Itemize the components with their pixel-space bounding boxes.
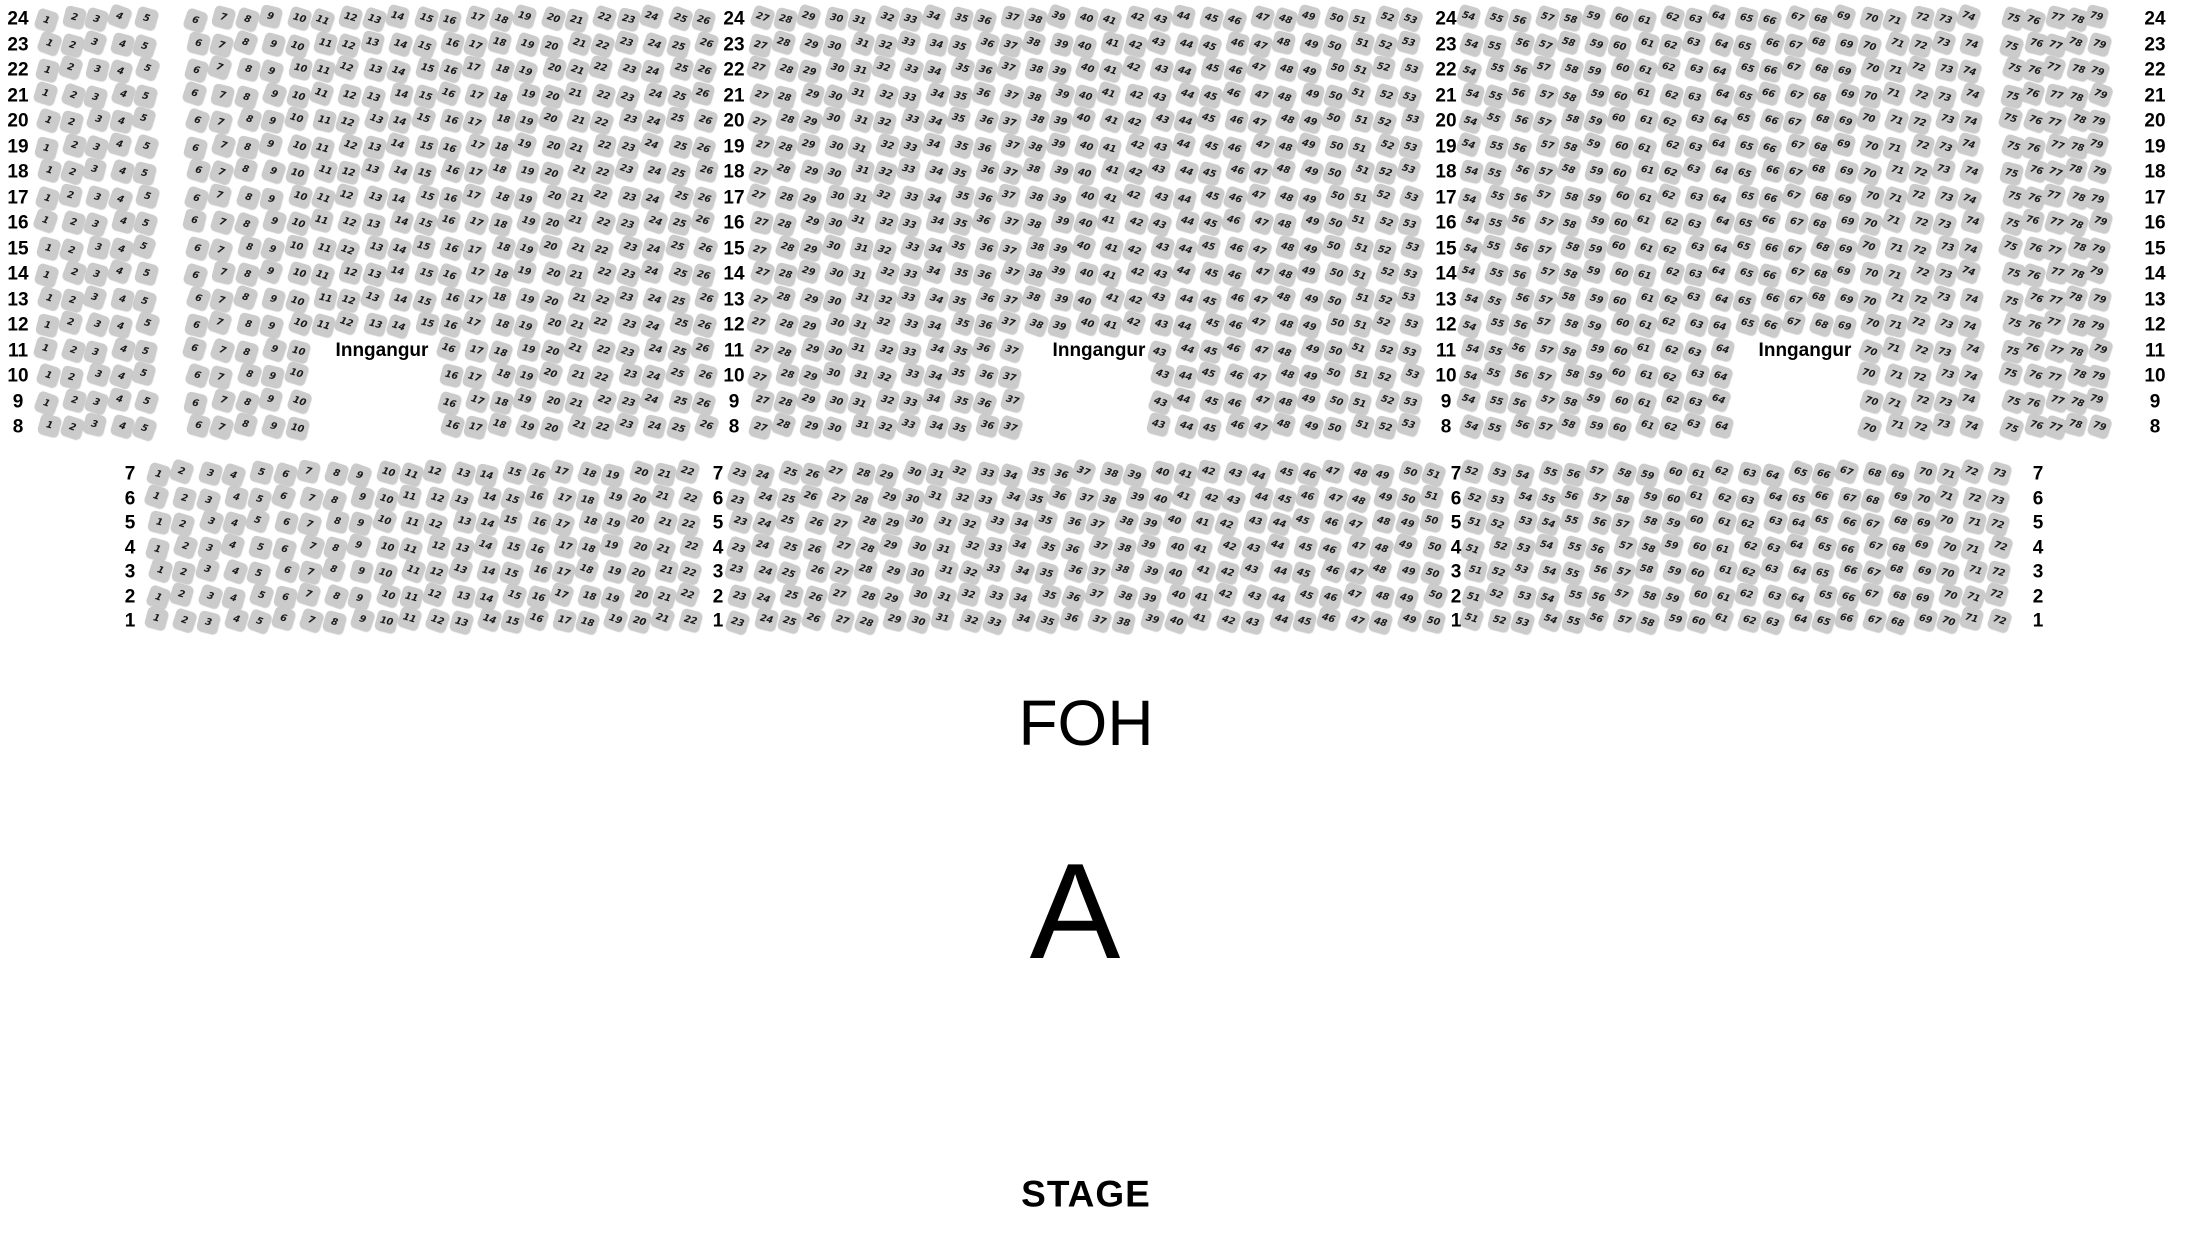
seat[interactable]: 46 <box>1221 7 1248 34</box>
seat[interactable]: 31 <box>930 606 955 631</box>
seat[interactable]: 48 <box>1272 261 1298 287</box>
seat[interactable]: 73 <box>1933 311 1960 338</box>
seat[interactable]: 56 <box>1505 335 1532 362</box>
seat[interactable]: 52 <box>1373 415 1398 440</box>
seat[interactable]: 52 <box>1373 209 1400 236</box>
seat[interactable]: 17 <box>463 415 488 440</box>
seat[interactable]: 20 <box>626 486 653 513</box>
seat[interactable]: 2 <box>60 337 87 364</box>
seat[interactable]: 6 <box>184 313 210 339</box>
seat[interactable]: 49 <box>1299 286 1325 312</box>
seat[interactable]: 61 <box>1630 207 1656 233</box>
seat[interactable]: 49 <box>1295 131 1321 157</box>
seat[interactable]: 68 <box>1859 487 1885 513</box>
seat[interactable]: 22 <box>588 310 613 335</box>
seat[interactable]: 19 <box>512 313 539 340</box>
seat[interactable]: 8 <box>232 29 259 56</box>
seat[interactable]: 40 <box>1070 233 1097 260</box>
seat[interactable]: 62 <box>1656 55 1682 81</box>
seat[interactable]: 69 <box>1834 31 1859 56</box>
seat[interactable]: 26 <box>692 107 718 133</box>
seat[interactable]: 19 <box>516 81 542 107</box>
seat[interactable]: 17 <box>464 337 490 363</box>
seat[interactable]: 73 <box>1932 84 1958 110</box>
seat[interactable]: 1 <box>34 185 60 211</box>
seat[interactable]: 47 <box>1346 533 1371 558</box>
seat[interactable]: 20 <box>628 582 653 607</box>
seat[interactable]: 58 <box>1637 508 1663 534</box>
seat[interactable]: 10 <box>283 105 309 131</box>
seat[interactable]: 4 <box>106 3 133 30</box>
seat[interactable]: 32 <box>875 132 901 158</box>
seat[interactable]: 62 <box>1737 608 1763 634</box>
seat[interactable]: 53 <box>1395 156 1421 182</box>
seat[interactable]: 61 <box>1635 158 1660 183</box>
seat[interactable]: 28 <box>855 583 881 609</box>
seat[interactable]: 49 <box>1295 386 1321 412</box>
seat[interactable]: 70 <box>1858 83 1883 108</box>
seat[interactable]: 31 <box>849 235 874 260</box>
seat[interactable]: 69 <box>1831 186 1858 213</box>
seat[interactable]: 58 <box>1558 311 1584 337</box>
seat[interactable]: 53 <box>1396 84 1423 111</box>
seat[interactable]: 12 <box>425 485 451 511</box>
seat[interactable]: 50 <box>1321 233 1347 259</box>
seat[interactable]: 10 <box>285 210 312 237</box>
seat[interactable]: 27 <box>750 387 775 412</box>
seat[interactable]: 34 <box>923 236 949 262</box>
seat[interactable]: 7 <box>211 132 237 158</box>
seat[interactable]: 31 <box>922 483 948 509</box>
seat[interactable]: 53 <box>1398 184 1425 211</box>
seat[interactable]: 16 <box>437 57 463 83</box>
seat[interactable]: 25 <box>668 55 694 81</box>
seat[interactable]: 35 <box>948 83 973 108</box>
seat[interactable]: 58 <box>1559 234 1585 260</box>
seat[interactable]: 45 <box>1289 507 1316 534</box>
seat[interactable]: 57 <box>1610 559 1636 585</box>
seat[interactable]: 25 <box>779 582 805 608</box>
seat[interactable]: 48 <box>1270 156 1296 182</box>
seat[interactable]: 33 <box>981 609 1008 636</box>
seat[interactable]: 23 <box>727 583 753 609</box>
seat[interactable]: 47 <box>1250 5 1276 31</box>
seat[interactable]: 4 <box>109 286 134 311</box>
seat[interactable]: 12 <box>338 132 365 159</box>
seat[interactable]: 9 <box>346 462 373 489</box>
seat[interactable]: 61 <box>1634 285 1660 311</box>
seat[interactable]: 19 <box>511 386 537 412</box>
seat[interactable]: 56 <box>1507 312 1533 338</box>
seat[interactable]: 51 <box>1347 390 1373 416</box>
seat[interactable]: 18 <box>490 234 516 260</box>
seat[interactable]: 1 <box>147 557 173 583</box>
seat[interactable]: 32 <box>875 387 901 413</box>
seat[interactable]: 35 <box>949 261 974 286</box>
seat[interactable]: 63 <box>1680 156 1707 183</box>
seat[interactable]: 28 <box>771 284 797 310</box>
seat[interactable]: 21 <box>564 263 589 288</box>
seat[interactable]: 79 <box>2088 209 2114 235</box>
seat[interactable]: 63 <box>1681 339 1708 366</box>
seat[interactable]: 8 <box>234 261 260 287</box>
seat[interactable]: 34 <box>924 414 950 440</box>
seat[interactable]: 79 <box>2087 31 2113 57</box>
seat[interactable]: 1 <box>147 510 172 535</box>
seat[interactable]: 5 <box>248 582 274 608</box>
seat[interactable]: 60 <box>1605 233 1631 259</box>
seat[interactable]: 63 <box>1735 487 1761 513</box>
seat[interactable]: 18 <box>576 460 603 487</box>
seat[interactable]: 69 <box>1832 108 1859 135</box>
seat[interactable]: 48 <box>1367 556 1394 583</box>
seat[interactable]: 36 <box>971 7 997 33</box>
seat[interactable]: 55 <box>1485 56 1511 82</box>
seat[interactable]: 72 <box>1906 182 1931 207</box>
seat[interactable]: 69 <box>1830 3 1857 30</box>
seat[interactable]: 57 <box>1531 310 1556 335</box>
seat[interactable]: 46 <box>1220 80 1247 107</box>
seat[interactable]: 51 <box>1347 8 1372 33</box>
seat[interactable]: 6 <box>270 606 296 632</box>
seat[interactable]: 24 <box>752 484 778 510</box>
seat[interactable]: 32 <box>873 82 900 109</box>
seat[interactable]: 30 <box>822 338 849 365</box>
seat[interactable]: 26 <box>798 483 824 509</box>
seat[interactable]: 10 <box>375 582 402 609</box>
seat[interactable]: 71 <box>1933 483 1960 510</box>
seat[interactable]: 1 <box>32 80 58 106</box>
seat[interactable]: 27 <box>746 109 773 136</box>
seat[interactable]: 55 <box>1481 160 1507 186</box>
seat[interactable]: 66 <box>1760 158 1786 184</box>
seat[interactable]: 8 <box>233 211 260 238</box>
seat[interactable]: 45 <box>1293 582 1320 609</box>
seat[interactable]: 29 <box>880 511 905 536</box>
seat[interactable]: 76 <box>2020 390 2045 415</box>
seat[interactable]: 46 <box>1222 390 1248 416</box>
seat[interactable]: 43 <box>1145 29 1172 56</box>
seat[interactable]: 24 <box>642 414 667 439</box>
seat[interactable]: 23 <box>615 389 641 415</box>
seat[interactable]: 75 <box>1998 361 2024 387</box>
seat[interactable]: 8 <box>235 57 261 83</box>
seat[interactable]: 46 <box>1223 362 1250 389</box>
seat[interactable]: 71 <box>1959 606 1985 632</box>
seat[interactable]: 72 <box>1907 159 1934 186</box>
seat[interactable]: 30 <box>905 561 930 586</box>
seat[interactable]: 18 <box>488 6 515 33</box>
seat[interactable]: 7 <box>209 337 236 364</box>
seat[interactable]: 59 <box>1663 607 1688 632</box>
seat[interactable]: 57 <box>1613 533 1639 559</box>
seat[interactable]: 49 <box>1300 81 1325 106</box>
seat[interactable]: 39 <box>1049 81 1076 108</box>
seat[interactable]: 49 <box>1296 259 1321 284</box>
seat[interactable]: 17 <box>462 237 487 262</box>
seat[interactable]: 20 <box>628 459 654 485</box>
seat[interactable]: 7 <box>211 387 237 413</box>
seat[interactable]: 37 <box>1084 581 1110 607</box>
seat[interactable]: 66 <box>1811 462 1837 488</box>
seat[interactable]: 21 <box>566 412 593 439</box>
seat[interactable]: 49 <box>1298 413 1325 440</box>
seat[interactable]: 38 <box>1024 106 1050 132</box>
seat[interactable]: 16 <box>436 208 462 234</box>
seat[interactable]: 60 <box>1685 608 1711 634</box>
seat[interactable]: 26 <box>690 390 716 416</box>
seat[interactable]: 66 <box>1757 263 1783 289</box>
seat[interactable]: 72 <box>1910 387 1936 413</box>
seat[interactable]: 3 <box>81 284 107 310</box>
seat[interactable]: 39 <box>1046 186 1073 213</box>
seat[interactable]: 40 <box>1074 55 1101 82</box>
seat[interactable]: 38 <box>1023 184 1049 210</box>
seat[interactable]: 7 <box>298 607 325 634</box>
seat[interactable]: 22 <box>592 132 617 157</box>
seat[interactable]: 23 <box>724 609 750 635</box>
seat[interactable]: 27 <box>748 32 773 57</box>
seat[interactable]: 41 <box>1187 606 1213 632</box>
seat[interactable]: 11 <box>309 7 336 34</box>
seat[interactable]: 74 <box>1960 209 1986 235</box>
seat[interactable]: 33 <box>985 508 1012 535</box>
seat[interactable]: 26 <box>693 30 719 56</box>
seat[interactable]: 30 <box>824 388 850 414</box>
seat[interactable]: 75 <box>1999 161 2024 186</box>
seat[interactable]: 27 <box>746 364 773 391</box>
seat[interactable]: 13 <box>360 29 385 54</box>
seat[interactable]: 31 <box>846 135 873 162</box>
seat[interactable]: 20 <box>625 560 652 587</box>
seat[interactable]: 4 <box>110 336 136 362</box>
seat[interactable]: 40 <box>1074 261 1100 287</box>
seat[interactable]: 20 <box>624 508 650 534</box>
seat[interactable]: 25 <box>667 5 694 32</box>
seat[interactable]: 18 <box>489 56 515 82</box>
seat[interactable]: 37 <box>1071 458 1098 485</box>
seat[interactable]: 30 <box>821 160 848 187</box>
seat[interactable]: 12 <box>336 160 361 185</box>
seat[interactable]: 56 <box>1588 558 1614 584</box>
seat[interactable]: 9 <box>261 81 288 108</box>
seat[interactable]: 57 <box>1531 55 1557 81</box>
seat[interactable]: 73 <box>1933 184 1959 210</box>
seat[interactable]: 48 <box>1271 412 1297 438</box>
seat[interactable]: 69 <box>1830 258 1856 284</box>
seat[interactable]: 41 <box>1096 208 1121 233</box>
seat[interactable]: 30 <box>824 310 850 336</box>
seat[interactable]: 2 <box>61 387 87 413</box>
seat[interactable]: 33 <box>895 29 921 55</box>
seat[interactable]: 28 <box>851 461 876 486</box>
seat[interactable]: 45 <box>1199 310 1226 337</box>
seat[interactable]: 56 <box>1559 483 1585 509</box>
seat[interactable]: 31 <box>847 185 873 211</box>
seat[interactable]: 43 <box>1238 556 1264 582</box>
seat[interactable]: 74 <box>1956 386 1982 412</box>
seat[interactable]: 4 <box>222 558 249 585</box>
seat[interactable]: 55 <box>1484 388 1509 413</box>
seat[interactable]: 72 <box>1910 5 1935 30</box>
seat[interactable]: 29 <box>797 314 822 339</box>
seat[interactable]: 3 <box>83 134 110 161</box>
seat[interactable]: 15 <box>411 288 438 315</box>
seat[interactable]: 43 <box>1240 535 1266 561</box>
seat[interactable]: 52 <box>1488 533 1514 559</box>
seat[interactable]: 61 <box>1683 483 1709 509</box>
seat[interactable]: 60 <box>1686 534 1712 560</box>
seat[interactable]: 15 <box>411 161 437 187</box>
seat[interactable]: 12 <box>424 607 451 634</box>
seat[interactable]: 44 <box>1171 4 1196 29</box>
seat[interactable]: 16 <box>437 390 463 416</box>
seat[interactable]: 9 <box>258 386 284 412</box>
seat[interactable]: 21 <box>566 157 593 184</box>
seat[interactable]: 39 <box>1046 131 1072 157</box>
seat[interactable]: 36 <box>1061 510 1086 535</box>
seat[interactable]: 3 <box>83 84 109 110</box>
seat[interactable]: 2 <box>57 54 83 80</box>
seat[interactable]: 50 <box>1323 388 1350 415</box>
seat[interactable]: 69 <box>1832 59 1858 85</box>
seat[interactable]: 76 <box>2019 80 2045 106</box>
seat[interactable]: 14 <box>474 463 499 488</box>
seat[interactable]: 36 <box>973 107 1000 134</box>
seat[interactable]: 10 <box>375 460 401 486</box>
seat[interactable]: 47 <box>1249 82 1275 108</box>
seat[interactable]: 66 <box>1756 135 1783 162</box>
seat[interactable]: 50 <box>1322 416 1348 442</box>
seat[interactable]: 52 <box>1370 182 1396 208</box>
seat[interactable]: 66 <box>1756 80 1782 106</box>
seat[interactable]: 68 <box>1809 184 1835 210</box>
seat[interactable]: 41 <box>1099 285 1126 312</box>
seat[interactable]: 73 <box>1932 6 1958 32</box>
seat[interactable]: 63 <box>1681 284 1707 310</box>
seat[interactable]: 50 <box>1422 582 1449 609</box>
seat[interactable]: 66 <box>1755 207 1782 234</box>
seat[interactable]: 8 <box>234 389 261 416</box>
seat[interactable]: 51 <box>1349 363 1374 388</box>
seat[interactable]: 73 <box>1984 487 2010 513</box>
seat[interactable]: 48 <box>1273 134 1299 160</box>
seat[interactable]: 31 <box>846 335 872 361</box>
seat[interactable]: 28 <box>773 311 799 337</box>
seat[interactable]: 4 <box>109 158 135 184</box>
seat[interactable]: 30 <box>901 459 928 486</box>
seat[interactable]: 37 <box>1000 387 1026 413</box>
seat[interactable]: 24 <box>638 386 665 413</box>
seat[interactable]: 42 <box>1125 260 1150 285</box>
seat[interactable]: 32 <box>959 533 985 559</box>
seat[interactable]: 19 <box>514 413 541 440</box>
seat[interactable]: 32 <box>874 4 901 31</box>
seat[interactable]: 40 <box>1070 105 1096 131</box>
seat[interactable]: 14 <box>476 559 502 585</box>
seat[interactable]: 19 <box>512 259 538 285</box>
seat[interactable]: 45 <box>1195 360 1221 386</box>
seat[interactable]: 43 <box>1149 361 1175 387</box>
seat[interactable]: 11 <box>310 57 336 83</box>
seat[interactable]: 65 <box>1732 83 1759 110</box>
seat[interactable]: 63 <box>1680 29 1706 55</box>
seat[interactable]: 19 <box>602 606 629 633</box>
seat[interactable]: 38 <box>1111 610 1136 635</box>
seat[interactable]: 31 <box>848 107 874 133</box>
seat[interactable]: 25 <box>665 33 691 59</box>
seat[interactable]: 9 <box>257 258 284 285</box>
seat[interactable]: 34 <box>920 258 946 284</box>
seat[interactable]: 48 <box>1271 84 1297 110</box>
seat[interactable]: 29 <box>797 108 824 135</box>
seat[interactable]: 17 <box>462 109 488 135</box>
seat[interactable]: 61 <box>1634 30 1660 56</box>
seat[interactable]: 33 <box>897 84 923 110</box>
seat[interactable]: 24 <box>640 59 665 84</box>
seat[interactable]: 61 <box>1633 235 1660 262</box>
seat[interactable]: 27 <box>748 82 774 108</box>
seat[interactable]: 60 <box>1606 106 1631 131</box>
seat[interactable]: 13 <box>447 556 474 583</box>
seat[interactable]: 17 <box>463 160 489 186</box>
seat[interactable]: 72 <box>1908 82 1935 109</box>
seat[interactable]: 1 <box>36 235 62 261</box>
seat[interactable]: 62 <box>1656 310 1682 336</box>
seat[interactable]: 34 <box>924 81 950 107</box>
seat[interactable]: 11 <box>400 510 426 536</box>
seat[interactable]: 26 <box>692 185 718 211</box>
seat[interactable]: 53 <box>1485 487 1510 512</box>
seat[interactable]: 7 <box>209 287 235 313</box>
seat[interactable]: 73 <box>1932 339 1958 365</box>
seat[interactable]: 28 <box>772 84 797 109</box>
seat[interactable]: 64 <box>1708 286 1735 313</box>
seat[interactable]: 48 <box>1274 312 1300 338</box>
seat[interactable]: 74 <box>1957 314 1983 340</box>
seat[interactable]: 54 <box>1534 532 1559 557</box>
seat[interactable]: 41 <box>1095 80 1121 106</box>
seat[interactable]: 61 <box>1632 8 1658 34</box>
seat[interactable]: 51 <box>1420 461 1447 488</box>
seat[interactable]: 7 <box>210 209 236 235</box>
seat[interactable]: 19 <box>511 131 538 158</box>
seat[interactable]: 37 <box>1000 5 1025 30</box>
seat[interactable]: 11 <box>312 108 337 133</box>
seat[interactable]: 22 <box>588 55 614 81</box>
seat[interactable]: 27 <box>746 310 772 336</box>
seat[interactable]: 28 <box>770 29 796 55</box>
seat[interactable]: 47 <box>1247 32 1273 58</box>
seat[interactable]: 62 <box>1737 533 1763 559</box>
seat[interactable]: 72 <box>1987 533 2014 560</box>
seat[interactable]: 40 <box>1073 133 1100 160</box>
seat[interactable]: 41 <box>1172 461 1198 487</box>
seat[interactable]: 71 <box>1883 313 1908 338</box>
seat[interactable]: 58 <box>1555 411 1581 437</box>
seat[interactable]: 77 <box>2040 309 2066 335</box>
seat[interactable]: 66 <box>1756 7 1782 33</box>
seat[interactable]: 50 <box>1320 105 1347 132</box>
seat[interactable]: 3 <box>82 211 109 238</box>
seat[interactable]: 67 <box>1862 533 1888 559</box>
seat[interactable]: 26 <box>690 80 716 106</box>
seat[interactable]: 40 <box>1071 288 1097 314</box>
seat[interactable]: 71 <box>1883 107 1910 134</box>
seat[interactable]: 46 <box>1220 335 1246 361</box>
seat[interactable]: 11 <box>309 262 336 289</box>
seat[interactable]: 65 <box>1731 106 1757 132</box>
